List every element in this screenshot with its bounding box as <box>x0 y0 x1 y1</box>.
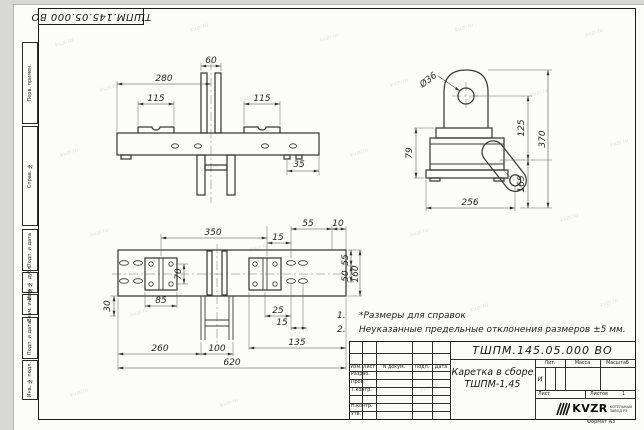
dim-165: 165 <box>517 175 527 192</box>
dim-115-right: 115 <box>253 94 270 104</box>
dim-370: 370 <box>538 130 548 147</box>
front-view-drawing: 60 280 115 115 35 <box>108 53 340 215</box>
dim-30: 30 <box>103 300 113 312</box>
note-1-text: *Размеры для справок <box>359 311 466 321</box>
title-block: Изм. Лист N докум. Подп. Дата Разраб. Пр… <box>349 341 636 420</box>
dim-260: 260 <box>151 344 168 354</box>
dim-50: 50 <box>341 270 351 282</box>
dim-256: 256 <box>461 198 478 208</box>
sheets-value: 1 <box>622 392 625 397</box>
col-list: Лист <box>362 365 376 370</box>
logo-subtitle-line2: ЗАВОД РЭ <box>610 409 632 413</box>
dim-100: 100 <box>208 344 225 354</box>
dim-60: 60 <box>205 56 217 66</box>
row-utv: Утв. <box>351 412 361 417</box>
col-izm: Изм. <box>350 365 362 370</box>
side-view-drawing: Ø36 125 165 370 79 256 <box>400 40 608 218</box>
stamp-vzam-inv: Взам. инв. № <box>22 294 38 315</box>
col-data: Дата <box>432 365 450 370</box>
dim-85: 85 <box>155 296 167 306</box>
front-view: 60 280 115 115 35 <box>108 53 340 215</box>
row-nkontr: Н.контр. <box>351 404 372 409</box>
plan-view-drawing: 350 15 55 10 55 50 160 70 85 30 25 15 26… <box>70 216 366 378</box>
stamp-inv-podl: Инв. № подл. <box>22 360 38 400</box>
kvzr-logo: KVZR КОТЕЛЬНЫЙ ЗАВОД РЭ <box>535 398 635 419</box>
part-name: Каретка в сборе ТШПМ-1,45 <box>450 362 535 396</box>
row-tkontr: Т.контр. <box>351 388 372 393</box>
dim-10: 10 <box>332 219 344 229</box>
mass-label: Масса <box>565 361 600 366</box>
side-view: Ø36 125 165 370 79 256 <box>400 40 608 218</box>
note-2-text: Неуказанные предельные отклонения размер… <box>359 325 626 335</box>
dim-79: 79 <box>405 147 415 159</box>
sheets-label: Листов <box>590 392 608 397</box>
col-podp: Подп. <box>412 365 432 370</box>
dim-620: 620 <box>223 358 240 368</box>
note-1-number: 1. <box>337 311 359 321</box>
dim-55a: 55 <box>302 219 314 229</box>
dim-350: 350 <box>204 228 221 238</box>
stamp-sprav-no: Справ. № <box>22 126 38 226</box>
note-2: 2. Неуказанные предельные отклонения раз… <box>337 325 637 335</box>
dim-35: 35 <box>293 160 305 170</box>
dim-25: 25 <box>272 306 284 316</box>
part-name-line2: ТШПМ-1,45 <box>465 379 521 391</box>
dim-135: 135 <box>288 338 305 348</box>
dim-dia36: Ø36 <box>417 70 439 91</box>
dim-160: 160 <box>351 265 361 282</box>
dim-280: 280 <box>155 74 172 84</box>
dim-15b: 15 <box>276 318 288 328</box>
logo-zigzag-icon <box>556 402 570 416</box>
lit-label: Лит. <box>535 361 565 366</box>
corner-doc-number: ТШПМ.145.05.000 ВО <box>31 11 151 22</box>
note-1: 1. *Размеры для справок <box>337 311 637 321</box>
stamp-perv-primen: Перв. примен. <box>22 42 38 124</box>
dim-115-left: 115 <box>147 94 164 104</box>
scale-label: Масштаб <box>600 361 635 366</box>
note-2-number: 2. <box>337 325 359 335</box>
row-prov: Пров. <box>351 380 365 385</box>
drawing-sheet-screen: kvzr.rukvzr.rukvzr.rukvzr.rukvzr.rukvzr.… <box>0 0 644 430</box>
corner-stamp: ТШПМ.145.05.000 ВО <box>38 8 144 25</box>
logo-text: KVZR <box>572 402 607 415</box>
row-razrab: Разраб. <box>351 372 370 377</box>
dim-15a: 15 <box>272 233 284 243</box>
sheet-label: Лист <box>538 392 550 397</box>
col-ndoc: N докум. <box>376 365 412 370</box>
part-name-line1: Каретка в сборе <box>452 367 534 379</box>
notes: 1. *Размеры для справок 2. Неуказанные п… <box>337 311 637 339</box>
dim-125: 125 <box>517 119 527 136</box>
stamp-podp-data-2: Подп. и дата <box>22 317 38 359</box>
format-label: Формат А3 <box>566 419 636 425</box>
doc-number: ТШПМ.145.05.000 ВО <box>450 342 635 359</box>
dim-70: 70 <box>174 268 184 280</box>
dim-55b: 55 <box>341 254 351 266</box>
plan-view: 350 15 55 10 55 50 160 70 85 30 25 15 26… <box>70 216 366 378</box>
logo-subtitle: КОТЕЛЬНЫЙ ЗАВОД РЭ <box>610 405 632 413</box>
lit-value: И <box>535 367 545 390</box>
